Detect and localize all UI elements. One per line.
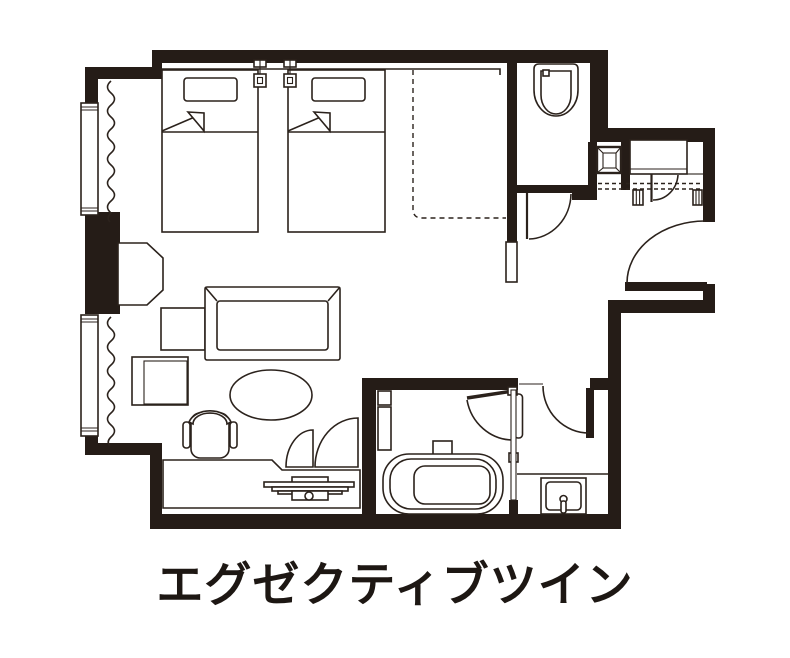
bath-faucet [433,441,452,455]
toilet-door [527,193,571,239]
desk-chair-icon [183,411,237,458]
floor-plan-page: エグゼクティブツイン [0,0,790,658]
stool-icon [597,147,621,173]
toilet-icon [534,64,578,116]
slippers-icon [633,190,702,205]
bathroom [378,387,523,514]
twin-bed-right [288,70,385,232]
lounge-chair-icon [118,243,163,305]
luggage-space-dashed [413,70,506,218]
closet-double-doors [286,418,358,467]
bath-shelf [378,391,391,405]
bath-counter [378,407,391,450]
window-upper [81,103,98,215]
washroom [517,384,608,514]
sofa-icon [205,287,340,360]
reading-light-right-icon [284,60,296,87]
pillow-right [312,78,365,101]
curtain-upper-icon [108,81,115,222]
washroom-door [543,386,594,438]
wall-opening-cap [506,242,517,282]
entrance-shelf-dashed [598,184,702,190]
plan-title: エグゼクティブツイン [0,546,790,615]
bathtub-icon [383,454,503,514]
entrance-door [625,221,707,291]
side-table [161,308,205,350]
cube-table [132,357,188,405]
window-lower [81,315,98,436]
glass-partition [511,390,516,500]
reading-light-left-icon [254,60,266,87]
oval-coffee-table [230,370,312,420]
curtain-lower-icon [108,317,115,446]
pillow-left [184,78,237,101]
twin-bed-left [162,70,258,232]
sink-icon [541,478,586,514]
